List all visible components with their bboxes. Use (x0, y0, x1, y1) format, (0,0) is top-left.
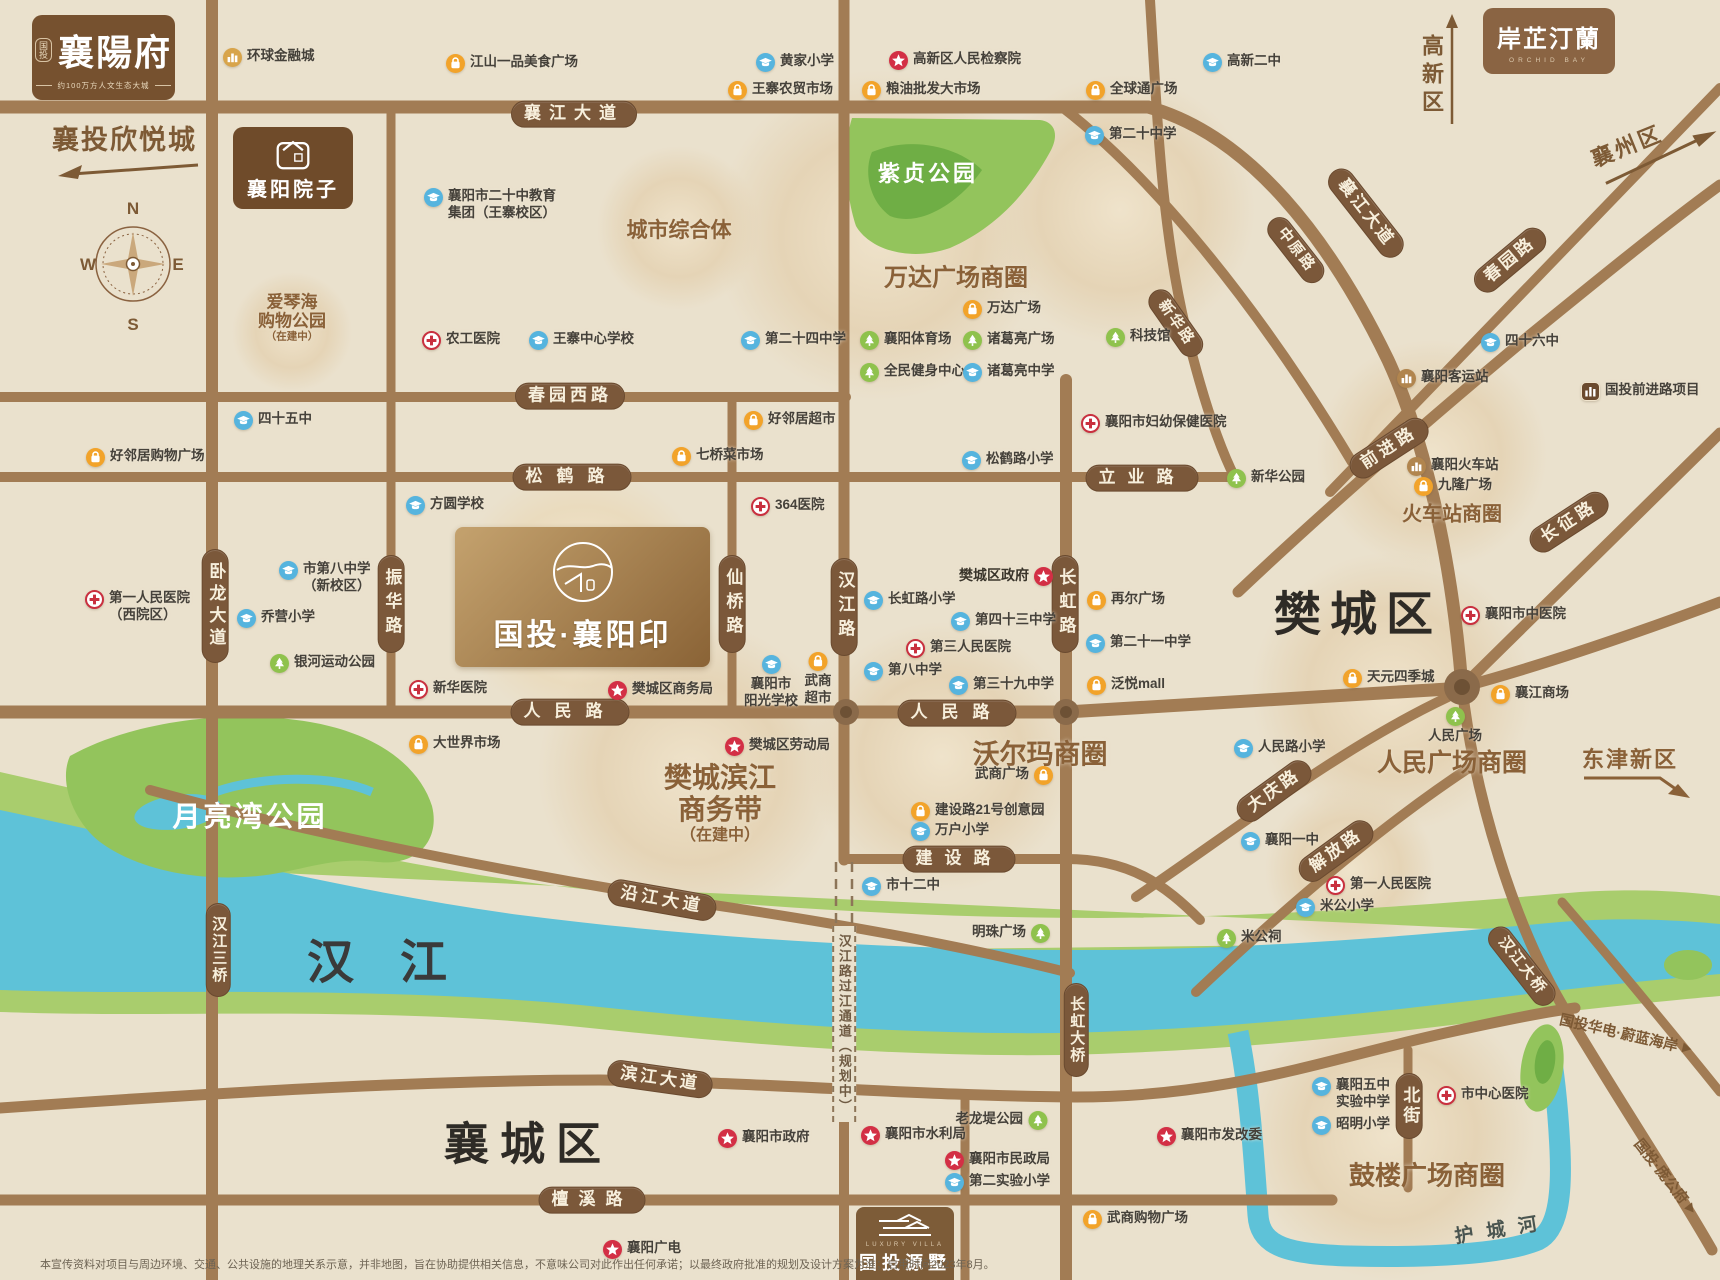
shop-icon (1087, 676, 1106, 695)
poi-item: 第二十中学 (1085, 126, 1177, 145)
poi-item: 再尔广场 (1087, 591, 1165, 610)
road-label: 长虹大桥 (1064, 983, 1089, 1077)
logo-orchid-subtitle: ORCHID BAY (1509, 57, 1589, 64)
school-icon (406, 496, 425, 515)
gov-icon (889, 51, 908, 70)
park-icon (1217, 929, 1236, 948)
poi-label: 九隆广场 (1438, 477, 1492, 494)
poi-label: 襄阳市水利局 (885, 1126, 966, 1143)
poi-item: 武商广场 (975, 766, 1053, 785)
school-icon (864, 591, 883, 610)
poi-item: 襄阳客运站 (1397, 369, 1489, 388)
poi-item: 国投前进路项目 (1581, 382, 1700, 401)
poi-item: 第二实验小学 (945, 1173, 1050, 1192)
area-label: 城市综合体 (627, 214, 732, 244)
poi-label: 第二十一中学 (1110, 634, 1191, 651)
poi-label: 樊城区劳动局 (749, 737, 830, 754)
road-label: 人民路 (511, 699, 630, 726)
shop-icon (446, 54, 465, 73)
poi-label: 第二十四中学 (765, 331, 846, 348)
poi-item: 七桥菜市场 (672, 447, 764, 466)
poi-label: 襄阳市二十中教育集团（王寨校区） (448, 188, 556, 222)
poi-item: 方圆学校 (406, 496, 484, 515)
poi-label: 襄阳火车站 (1431, 457, 1499, 474)
school-icon (1481, 333, 1500, 352)
poi-item: 364医院 (751, 497, 825, 516)
gov-icon (725, 737, 744, 756)
poi-item: 老龙堤公园 (956, 1111, 1048, 1130)
poi-label: 第一人民医院（西院区） (109, 590, 190, 624)
poi-item: 第二十一中学 (1086, 634, 1191, 653)
road-label: 建设路 (903, 846, 1016, 873)
logo-yard-title: 襄阳院子 (247, 173, 339, 202)
poi-item: 市中心医院 (1437, 1086, 1529, 1105)
poi-label: 米公祠 (1241, 929, 1282, 946)
park-icon (963, 331, 982, 350)
poi-item: 王寨农贸市场 (728, 81, 833, 100)
poi-label: 市十二中 (886, 877, 940, 894)
logo-orchid-title: 岸芷汀蘭 (1497, 19, 1601, 54)
poi-item: 万达广场 (963, 300, 1041, 319)
poi-item: 第八中学 (864, 662, 942, 681)
poi-item: 襄阳市妇幼保健医院 (1081, 414, 1227, 433)
poi-item: 黄家小学 (756, 53, 834, 72)
school-icon (279, 561, 298, 580)
dongjin-arrow-icon (1582, 774, 1694, 798)
school-icon (1086, 634, 1105, 653)
shop-icon (1083, 1210, 1102, 1229)
label-zizhen-park: 紫贞公园 (878, 156, 978, 188)
poi-label: 农工医院 (446, 331, 500, 348)
label-dongjin: 东津新区 (1582, 742, 1694, 798)
poi-label: 天元四季城 (1367, 669, 1435, 686)
gov-icon (718, 1129, 737, 1148)
logo-yuanshu-en: LUXURY VILLA (866, 1242, 944, 1248)
school-icon (237, 609, 256, 628)
hospital-icon (1081, 414, 1100, 433)
poi-label: 襄阳市妇幼保健医院 (1105, 414, 1227, 431)
poi-item: 襄阳一中 (1241, 832, 1319, 851)
area-label: 火车站商圈 (1402, 498, 1502, 527)
logo-xiangyangfu-title: 襄陽府 (58, 24, 172, 76)
school-icon (424, 188, 443, 207)
school-icon (1296, 898, 1315, 917)
road-label: 长虹路 (1052, 555, 1079, 653)
poi-label: 人民广场 (1428, 728, 1482, 745)
road-label: 檀溪路 (539, 1187, 646, 1214)
poi-item: 环球金融城 (223, 48, 315, 67)
park-icon (1227, 469, 1246, 488)
poi-item: 人民广场 (1428, 707, 1482, 745)
poi-label: 樊城区商务局 (632, 681, 713, 698)
poi-item: 襄阳市二十中教育集团（王寨校区） (424, 188, 556, 222)
poi-item: 王寨中心学校 (529, 331, 634, 350)
yinpin-logo-icon (551, 540, 615, 604)
gov-icon (608, 681, 627, 700)
poi-label: 王寨中心学校 (553, 331, 634, 348)
poi-label: 市第八中学（新校区） (303, 561, 371, 595)
area-label: （在建中） (266, 329, 319, 344)
poi-item: 新华公园 (1227, 469, 1305, 488)
school-icon (1203, 53, 1222, 72)
school-icon (756, 53, 775, 72)
poi-item: 建设路21号创意园 (911, 802, 1045, 821)
poi-item: 襄阳火车站 (1407, 457, 1499, 476)
road-label: 春园西路 (515, 383, 625, 410)
poi-item: 长虹路小学 (864, 591, 956, 610)
school-icon (945, 1173, 964, 1192)
poi-item: 襄阳体育场 (860, 331, 952, 350)
poi-label: 第八中学 (888, 662, 942, 679)
gov-icon (1034, 567, 1053, 586)
poi-label: 樊城区政府 (959, 567, 1029, 585)
poi-label: 四十六中 (1505, 333, 1559, 350)
poi-item: 襄阳市水利局 (861, 1126, 966, 1145)
park-icon (270, 654, 289, 673)
poi-item: 新华医院 (409, 680, 487, 699)
poi-item: 第一人民医院（西院区） (85, 590, 190, 624)
poi-label: 七桥菜市场 (696, 447, 764, 464)
hospital-icon (409, 680, 428, 699)
road-label: 北街 (1396, 1073, 1423, 1139)
poi-item: 人民路小学 (1234, 739, 1326, 758)
poi-label: 襄阳广电 (627, 1240, 681, 1257)
poi-label: 第四十三中学 (975, 612, 1056, 629)
poi-item: 市十二中 (862, 877, 940, 896)
shop-icon (409, 735, 428, 754)
poi-label: 新华公园 (1251, 469, 1305, 486)
poi-label: 新华医院 (433, 680, 487, 697)
poi-item: 襄江商场 (1491, 685, 1569, 704)
poi-item: 高新区人民检察院 (889, 51, 1021, 70)
school-icon (1241, 832, 1260, 851)
area-label: 鼓楼广场商圈 (1349, 1156, 1505, 1193)
poi-label: 第二十中学 (1109, 126, 1177, 143)
school-icon (864, 662, 883, 681)
poi-item: 明珠广场 (972, 924, 1050, 943)
poi-item: 襄阳市政府 (718, 1129, 810, 1148)
poi-item: 樊城区商务局 (608, 681, 713, 700)
poi-label: 364医院 (775, 497, 825, 514)
landmark-icon (223, 48, 242, 67)
shop-icon (744, 411, 763, 430)
compass-w: W (80, 255, 97, 274)
poi-label: 粮油批发大市场 (886, 81, 981, 98)
poi-label: 第三人民医院 (930, 639, 1011, 656)
poi-item: 高新二中 (1203, 53, 1281, 72)
disclaimer-text: 本宣传资料对项目与周边环境、交通、公共设施的地理关系示意，并非地图，旨在协助提供… (40, 1256, 995, 1272)
school-icon (951, 612, 970, 631)
hospital-icon (422, 331, 441, 350)
hospital-icon (1461, 606, 1480, 625)
project-icon (1581, 382, 1600, 401)
poi-item: 好邻居超市 (744, 411, 836, 430)
poi-label: 襄阳市政府 (742, 1129, 810, 1146)
xinyuecheng-arrow-icon (52, 159, 202, 181)
poi-label: 人民路小学 (1258, 739, 1326, 756)
school-icon (741, 331, 760, 350)
poi-label: 明珠广场 (972, 924, 1026, 941)
poi-label: 泛悦mall (1111, 676, 1165, 693)
poi-item: 全民健身中心 (860, 363, 965, 382)
poi-label: 万户小学 (935, 822, 989, 839)
school-icon (862, 877, 881, 896)
poi-item: 江山一品美食广场 (446, 54, 578, 73)
poi-label: 襄阳五中实验中学 (1336, 1077, 1390, 1111)
road-label: 汉江三桥 (206, 903, 231, 997)
label-xinyuecheng: 襄投欣悦城 (52, 118, 202, 181)
poi-label: 全民健身中心 (884, 363, 965, 380)
shop-icon (86, 448, 105, 467)
hospital-icon (85, 590, 104, 609)
poi-label: 大世界市场 (433, 735, 501, 752)
school-icon (1312, 1116, 1331, 1135)
poi-item: 昭明小学 (1312, 1116, 1390, 1135)
poi-label: 第二实验小学 (969, 1173, 1050, 1190)
poi-label: 方圆学校 (430, 496, 484, 513)
poi-item: 襄阳市发改委 (1157, 1127, 1262, 1146)
poi-item: 泛悦mall (1087, 676, 1165, 695)
poi-label: 襄阳市中医院 (1485, 606, 1566, 623)
poi-item: 樊城区劳动局 (725, 737, 830, 756)
poi-item: 乔营小学 (237, 609, 315, 628)
hospital-icon (1326, 876, 1345, 895)
poi-label: 好邻居超市 (768, 411, 836, 428)
poi-label: 武商超市 (805, 673, 832, 707)
poi-label: 诸葛亮广场 (987, 331, 1055, 348)
poi-item: 天元四季城 (1343, 669, 1435, 688)
poi-item: 好邻居购物广场 (86, 448, 205, 467)
poi-label: 诸葛亮中学 (987, 363, 1055, 380)
road-label: 仙桥路 (719, 555, 746, 653)
poi-item: 诸葛亮广场 (963, 331, 1055, 350)
poi-label: 高新区人民检察院 (913, 51, 1021, 68)
logo-xiangyangfu: 国投 襄陽府 约100万方人文生态大城 (32, 15, 175, 100)
compass: N W E S (78, 192, 188, 342)
poi-label: 米公小学 (1320, 898, 1374, 915)
poi-item: 九隆广场 (1414, 477, 1492, 496)
school-icon (529, 331, 548, 350)
compass-e: E (172, 255, 183, 274)
shop-icon (1343, 669, 1362, 688)
poi-item: 襄阳市民政局 (945, 1151, 1050, 1170)
road-label: 松鹤路 (513, 464, 632, 491)
poi-item: 第二十四中学 (741, 331, 846, 350)
poi-item: 市第八中学（新校区） (279, 561, 371, 595)
road-label: 振华路 (378, 555, 405, 653)
road-label: 汉江路 (831, 558, 858, 656)
poi-item: 四十六中 (1481, 333, 1559, 352)
poi-item: 武商购物广场 (1083, 1210, 1188, 1229)
poi-label: 好邻居购物广场 (110, 448, 205, 465)
poi-label: 环球金融城 (247, 48, 315, 65)
poi-label: 再尔广场 (1111, 591, 1165, 608)
logo-xiangyangfu-tagline: 约100万方人文生态大城 (57, 80, 149, 91)
poi-label: 襄阳体育场 (884, 331, 952, 348)
road-label: 人民路 (898, 700, 1017, 727)
school-icon (911, 822, 930, 841)
school-icon (1312, 1077, 1331, 1096)
park-icon (860, 363, 879, 382)
label-moon-bay-park: 月亮湾公园 (172, 795, 327, 835)
park-icon (1106, 328, 1125, 347)
hospital-icon (751, 497, 770, 516)
yard-house-icon (273, 135, 313, 171)
shop-icon (862, 81, 881, 100)
poi-label: 科技馆 (1130, 328, 1171, 345)
poi-item: 银河运动公园 (270, 654, 375, 673)
poi-item: 武商超市 (805, 652, 832, 707)
school-icon (962, 451, 981, 470)
shop-icon (672, 447, 691, 466)
park-icon (1031, 924, 1050, 943)
poi-label: 襄阳市发改委 (1181, 1127, 1262, 1144)
park-icon (860, 331, 879, 350)
hospital-icon (906, 639, 925, 658)
map-canvas: N W E S 国投 襄陽府 约100万方人文生态大城 襄投欣悦城 襄阳院子 (0, 0, 1720, 1280)
shop-icon (963, 300, 982, 319)
poi-item: 农工医院 (422, 331, 500, 350)
poi-item: 襄阳市中医院 (1461, 606, 1566, 625)
gaoxinqu-line-icon (1442, 12, 1462, 127)
poi-label: 武商购物广场 (1107, 1210, 1188, 1227)
poi-label: 松鹤路小学 (986, 451, 1054, 468)
compass-s: S (127, 315, 138, 334)
poi-label: 国投前进路项目 (1605, 382, 1700, 399)
shop-icon (809, 652, 828, 671)
shop-icon (1086, 81, 1105, 100)
poi-label: 江山一品美食广场 (470, 54, 578, 71)
district-xiangcheng: 襄城区 (444, 1108, 612, 1173)
poi-item: 襄阳市阳光学校 (744, 655, 798, 710)
poi-label: 全球通广场 (1110, 81, 1178, 98)
station-icon (1407, 457, 1426, 476)
poi-item: 万户小学 (911, 822, 989, 841)
school-icon (1234, 739, 1253, 758)
poi-label: 建设路21号创意园 (935, 802, 1045, 819)
school-icon (963, 363, 982, 382)
logo-orchid-bay: 岸芷汀蘭 ORCHID BAY (1483, 8, 1615, 74)
shop-icon (1087, 591, 1106, 610)
gov-icon (861, 1126, 880, 1145)
poi-item: 科技馆 (1106, 328, 1171, 347)
poi-item: 诸葛亮中学 (963, 363, 1055, 382)
poi-item: 全球通广场 (1086, 81, 1178, 100)
poi-label: 襄江商场 (1515, 685, 1569, 702)
district-fancheng: 樊城区 (1274, 576, 1442, 645)
poi-label: 武商广场 (975, 766, 1029, 783)
shop-icon (1414, 477, 1433, 496)
poi-label: 万达广场 (987, 300, 1041, 317)
poi-label: 襄阳市民政局 (969, 1151, 1050, 1168)
school-icon (234, 411, 253, 430)
poi-item: 第三十九中学 (949, 676, 1054, 695)
poi-label: 黄家小学 (780, 53, 834, 70)
gov-icon (1157, 1127, 1176, 1146)
poi-label: 四十五中 (258, 411, 312, 428)
station-icon (1397, 369, 1416, 388)
poi-label: 乔营小学 (261, 609, 315, 626)
shop-icon (728, 81, 747, 100)
yuanshu-mountain-icon (875, 1213, 935, 1239)
road-label: 立业路 (1086, 465, 1199, 492)
poi-item: 四十五中 (234, 411, 312, 430)
compass-n: N (127, 199, 139, 218)
poi-item: 襄阳五中实验中学 (1312, 1077, 1390, 1111)
poi-item: 樊城区政府 (959, 567, 1053, 586)
road-label: 卧龙大道 (202, 549, 229, 663)
poi-label: 第三十九中学 (973, 676, 1054, 693)
road-label: 襄江大道 (511, 101, 637, 128)
poi-label: 襄阳市阳光学校 (744, 676, 798, 710)
gov-icon (945, 1151, 964, 1170)
shop-icon (1491, 685, 1510, 704)
label-han-river: 汉江 (307, 924, 493, 993)
poi-item: 第三人民医院 (906, 639, 1011, 658)
poi-item: 松鹤路小学 (962, 451, 1054, 470)
poi-item: 大世界市场 (409, 735, 501, 754)
poi-label: 昭明小学 (1336, 1116, 1390, 1133)
poi-item: 第四十三中学 (951, 612, 1056, 631)
shop-icon (1034, 766, 1053, 785)
hospital-icon (1437, 1086, 1456, 1105)
logo-yinpin-project: 国投·襄阳印 (455, 527, 710, 667)
poi-item: 粮油批发大市场 (862, 81, 981, 100)
poi-item: 第一人民医院 (1326, 876, 1431, 895)
poi-label: 王寨农贸市场 (752, 81, 833, 98)
poi-label: 长虹路小学 (888, 591, 956, 608)
area-label: 人民广场商圈 (1377, 743, 1527, 779)
logo-yinpin-title: 国投·襄阳印 (494, 610, 672, 654)
park-icon (1446, 707, 1465, 726)
poi-label: 市中心医院 (1461, 1086, 1529, 1103)
school-icon (1085, 126, 1104, 145)
poi-label: 第一人民医院 (1350, 876, 1431, 893)
poi-item: 米公小学 (1296, 898, 1374, 917)
poi-item: 米公祠 (1217, 929, 1282, 948)
poi-label: 银河运动公园 (294, 654, 375, 671)
area-label: （在建中） (680, 821, 760, 845)
park-icon (1028, 1111, 1047, 1130)
school-icon (762, 655, 781, 674)
poi-label: 襄阳一中 (1265, 832, 1319, 849)
logo-xiangyang-yard: 襄阳院子 (233, 127, 353, 209)
planned-crossing-label: 汉江路过江通道（规划中） (832, 926, 856, 1122)
shop-icon (911, 802, 930, 821)
school-icon (949, 676, 968, 695)
poi-label: 襄阳客运站 (1421, 369, 1489, 386)
poi-label: 高新二中 (1227, 53, 1281, 70)
logo-xiangyangfu-seal: 国投 (35, 38, 52, 62)
area-label: 万达广场商圈 (884, 258, 1028, 293)
